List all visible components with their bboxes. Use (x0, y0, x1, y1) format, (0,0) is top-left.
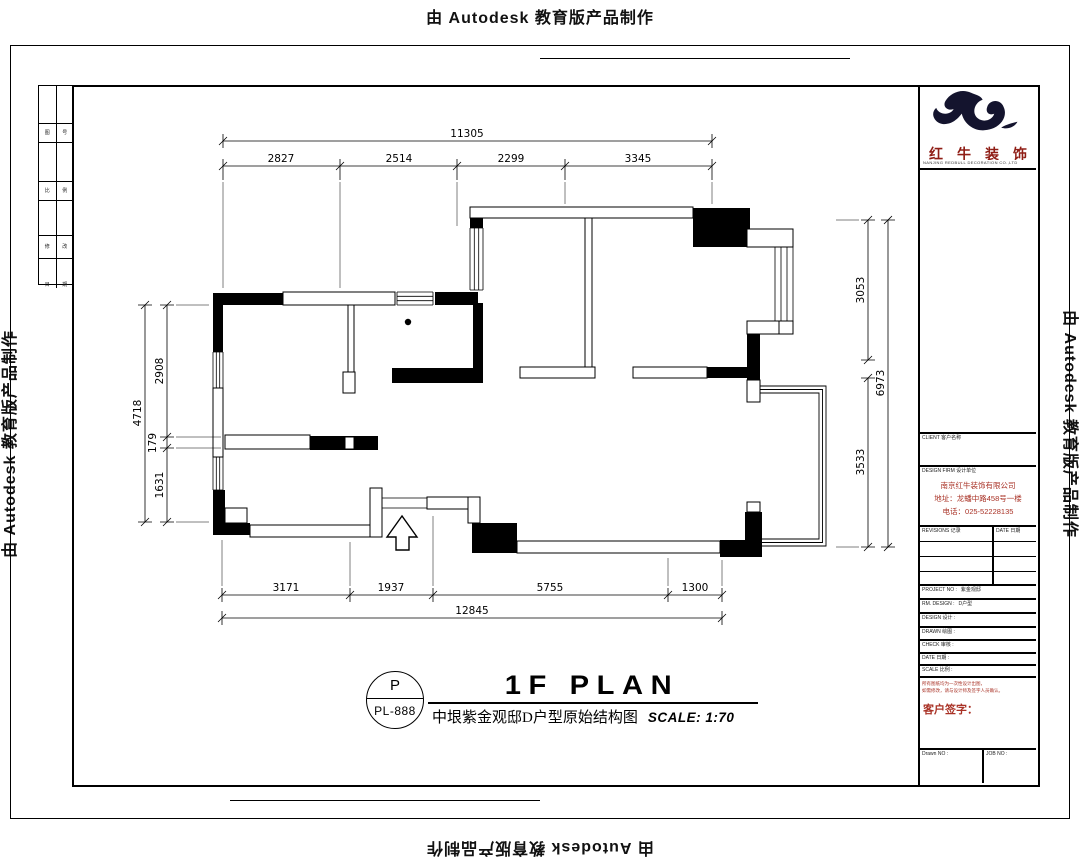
svg-text:3533: 3533 (855, 449, 867, 476)
signature-cell: 所有图纸均为一次性设计出图， 如需修改，请与设计师及签字人员确认。 客户签字： (920, 678, 1036, 750)
sheet-number-bubble: P PL-888 (366, 671, 424, 729)
svg-text:2908: 2908 (154, 358, 166, 385)
brand-tagline: NANJING REDBULL DECORATION CO.,LTD (920, 160, 1036, 165)
plan-title-underline (428, 702, 758, 704)
svg-text:5755: 5755 (537, 582, 564, 594)
svg-text:4718: 4718 (132, 400, 144, 427)
info-label: CHECK 审核 : (922, 642, 954, 649)
svg-text:3345: 3345 (625, 153, 652, 165)
svg-text:1300: 1300 (682, 582, 709, 594)
svg-text:11305: 11305 (450, 128, 483, 140)
note-line: 所有图纸均为一次性设计出图， (922, 680, 1034, 687)
entry-arrow-icon (387, 516, 417, 550)
info-row: DESIGN 设计 : (920, 614, 1036, 628)
sheet-tag: P (367, 672, 423, 699)
info-value: D户型 (959, 601, 973, 608)
brand-char: 红 (929, 144, 943, 160)
client-cell: CLIENT 客户名称 (920, 434, 1036, 467)
logo-cell: 红 牛 装 饰 (920, 85, 1036, 160)
plan-title: 1F PLAN (430, 670, 754, 701)
note-line: 如需修改，请与设计师及签字人员确认。 (922, 687, 1034, 694)
revision-row (920, 572, 1036, 586)
label-client: CLIENT 客户名称 (920, 434, 1036, 443)
entry-threshold (382, 498, 427, 508)
floor-plan-canvas: 11305 2827 2514 2299 3345 4718 2908 179 … (0, 0, 1080, 864)
info-label: SCALE 比例 : (922, 667, 953, 674)
footer-cells: Drawn NO : JOB NO : (920, 750, 1036, 783)
svg-text:3053: 3053 (855, 277, 867, 304)
windows (213, 228, 793, 490)
brand-char: 饰 (1013, 144, 1027, 160)
svg-text:6973: 6973 (875, 370, 887, 397)
drawing-title-cell (920, 170, 1036, 434)
column-dot (405, 319, 411, 325)
company-phone: 电话：025-52228135 (920, 505, 1036, 518)
revision-row (920, 557, 1036, 572)
revision-row (920, 542, 1036, 557)
info-row: RM. DESIGN :D户型 (920, 600, 1036, 614)
plan-subtitle: 中垠紫金观邸D户型原始结构图 (432, 706, 638, 727)
info-label: RM. DESIGN : (922, 601, 955, 608)
info-row: PROJECT NO :紫金观邸 (920, 586, 1036, 600)
info-label: DATE 日期 : (922, 655, 949, 662)
walls-solid (213, 208, 762, 557)
plan-subtitle-row: 中垠紫金观邸D户型原始结构图 SCALE: 1:70 (432, 706, 768, 727)
info-row: DATE 日期 : (920, 654, 1036, 666)
svg-text:2827: 2827 (268, 153, 295, 165)
rev-col-label: REVISIONS 记录 (920, 527, 994, 541)
sheet-number: PL-888 (367, 699, 423, 723)
info-value: 紫金观邸 (961, 587, 981, 594)
firm-cell: DESIGN FIRM 设计单位 南京红牛装饰有限公司 地址：龙蟠中路458号一… (920, 467, 1036, 527)
svg-text:1631: 1631 (154, 472, 166, 499)
company-name: 南京红牛装饰有限公司 (920, 479, 1036, 492)
brand-char: 装 (985, 144, 999, 160)
revision-header: REVISIONS 记录 DATE 日期 (920, 527, 1036, 542)
svg-text:2299: 2299 (498, 153, 525, 165)
label-firm: DESIGN FIRM 设计单位 (920, 467, 1036, 476)
svg-text:3171: 3171 (273, 582, 300, 594)
redbull-logo-icon (920, 88, 1036, 144)
svg-text:1937: 1937 (378, 582, 405, 594)
balcony-railing (760, 386, 826, 546)
info-label: DRAWN 绘图 : (922, 629, 955, 636)
svg-text:12845: 12845 (455, 605, 488, 617)
info-row: DRAWN 绘图 : (920, 628, 1036, 641)
info-row: SCALE 比例 : (920, 666, 1036, 678)
brand-char: 牛 (957, 144, 971, 160)
plan-scale: SCALE: 1:70 (648, 710, 735, 725)
info-row: CHECK 审核 : (920, 641, 1036, 654)
company-address: 地址：龙蟠中路458号一楼 (920, 492, 1036, 505)
info-label: PROJECT NO : (922, 587, 957, 594)
svg-text:2514: 2514 (386, 153, 413, 165)
footer-left: Drawn NO : (920, 750, 984, 783)
svg-text:179: 179 (147, 433, 159, 453)
brand-name: 红 牛 装 饰 (920, 144, 1036, 160)
date-col-label: DATE 日期 (994, 527, 1036, 541)
footer-right: JOB NO : (984, 750, 1036, 783)
brand-tagline-cell: NANJING REDBULL DECORATION CO.,LTD (920, 160, 1036, 170)
customer-signature-label: 客户签字： (920, 694, 1036, 717)
title-block: 红 牛 装 饰 NANJING REDBULL DECORATION CO.,L… (920, 85, 1036, 783)
walls-thin (213, 207, 793, 553)
info-label: DESIGN 设计 : (922, 615, 955, 622)
